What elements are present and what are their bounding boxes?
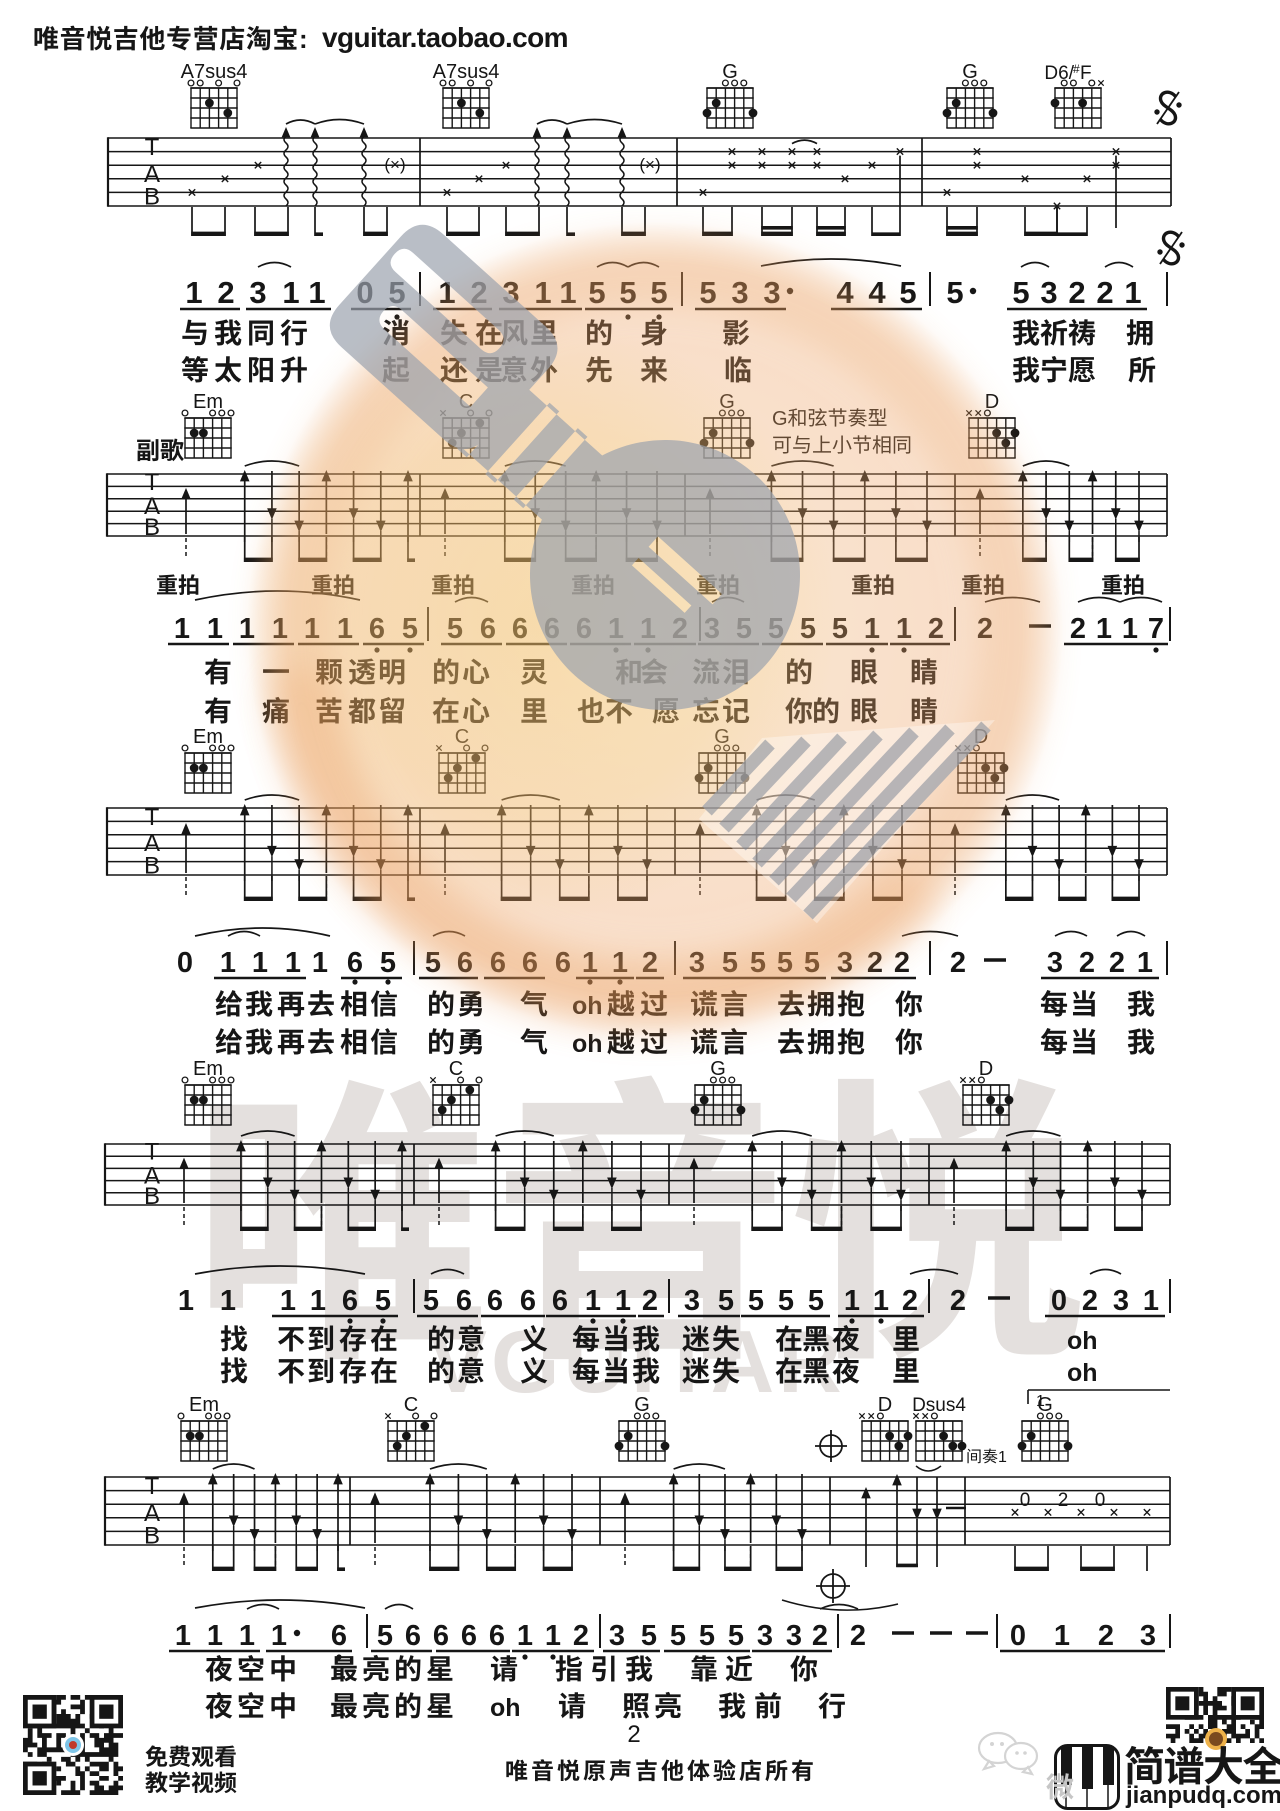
svg-text:前: 前 — [754, 1685, 782, 1725]
svg-text:1: 1 — [175, 1620, 191, 1652]
svg-text:再: 再 — [277, 1021, 305, 1061]
svg-text:1: 1 — [1143, 1285, 1159, 1317]
svg-text:去: 去 — [777, 1021, 805, 1061]
svg-text:当: 当 — [602, 1350, 630, 1390]
svg-text:0: 0 — [1020, 1490, 1031, 1511]
svg-text:我: 我 — [245, 1021, 273, 1061]
svg-text:你: 你 — [790, 1648, 818, 1688]
svg-text:每: 每 — [1040, 983, 1068, 1023]
svg-text:2: 2 — [950, 1285, 966, 1317]
svg-text:1: 1 — [310, 1285, 326, 1317]
svg-text:每: 每 — [1040, 1021, 1068, 1061]
svg-text:6: 6 — [342, 1285, 358, 1317]
svg-text:5: 5 — [778, 1285, 794, 1317]
svg-text:重拍: 重拍 — [1101, 568, 1145, 600]
svg-text:唯音悦吉他专营店淘宝:: 唯音悦吉他专营店淘宝: — [33, 19, 308, 56]
svg-text:亮: 亮 — [362, 1685, 390, 1725]
svg-text:夜: 夜 — [832, 1350, 860, 1390]
svg-text:0: 0 — [1010, 1620, 1026, 1652]
svg-text:5: 5 — [946, 275, 963, 310]
svg-text:(×): (×) — [384, 155, 405, 174]
svg-text:2: 2 — [627, 1721, 640, 1748]
svg-text:空: 空 — [237, 1648, 265, 1688]
svg-text:我: 我 — [1012, 349, 1040, 389]
svg-text:1: 1 — [174, 613, 190, 645]
svg-text:在: 在 — [370, 1350, 398, 1390]
svg-text:给: 给 — [215, 983, 243, 1023]
svg-text:3: 3 — [1047, 947, 1063, 979]
svg-text:B: B — [144, 1523, 160, 1550]
svg-text:6: 6 — [461, 1620, 477, 1652]
svg-text:5: 5 — [423, 1285, 439, 1317]
svg-text:3: 3 — [1113, 1285, 1129, 1317]
svg-text:副歌: 副歌 — [136, 431, 184, 466]
svg-text:不: 不 — [277, 1350, 305, 1390]
svg-text:1: 1 — [1036, 1393, 1045, 1410]
svg-text:5: 5 — [718, 1285, 734, 1317]
svg-text:2: 2 — [1096, 275, 1113, 310]
svg-text:最: 最 — [330, 1648, 358, 1688]
svg-text:当: 当 — [1070, 1021, 1098, 1061]
svg-text:给: 给 — [215, 1021, 243, 1061]
svg-text:你: 你 — [895, 1021, 923, 1061]
svg-text:星: 星 — [426, 1685, 454, 1725]
svg-text:引: 引 — [590, 1648, 618, 1688]
svg-text:我: 我 — [214, 312, 242, 352]
svg-text:0: 0 — [1095, 1490, 1106, 1511]
svg-text:1: 1 — [308, 275, 325, 310]
svg-text:5: 5 — [380, 947, 396, 979]
svg-text:1: 1 — [220, 1285, 236, 1317]
svg-text:你: 你 — [895, 983, 923, 1023]
svg-text:我: 我 — [1127, 983, 1155, 1023]
svg-text:jianpudq.com: jianpudq.com — [1125, 1782, 1280, 1809]
svg-text:信: 信 — [370, 983, 398, 1023]
svg-text:当: 当 — [1070, 983, 1098, 1023]
svg-text:1: 1 — [1137, 947, 1153, 979]
svg-text:2: 2 — [1070, 613, 1086, 645]
svg-text:去: 去 — [307, 1021, 335, 1061]
svg-text:我: 我 — [1012, 312, 1040, 352]
svg-text:2: 2 — [902, 1285, 918, 1317]
svg-text:2: 2 — [1068, 275, 1085, 310]
svg-text:抱: 抱 — [837, 1021, 865, 1061]
svg-text:意: 意 — [457, 1350, 485, 1390]
svg-text:oh: oh — [1067, 1327, 1098, 1355]
svg-text:的: 的 — [427, 1350, 455, 1390]
svg-text:2: 2 — [1082, 1285, 1098, 1317]
svg-text:1: 1 — [615, 1285, 631, 1317]
svg-text:教学视频: 教学视频 — [145, 1764, 237, 1798]
svg-text:2: 2 — [642, 1285, 658, 1317]
svg-text:请: 请 — [558, 1685, 586, 1725]
svg-text:Dsus4: Dsus4 — [912, 1395, 966, 1416]
svg-text:近: 近 — [725, 1648, 753, 1688]
svg-text:亮: 亮 — [654, 1685, 682, 1725]
svg-text:靠: 靠 — [690, 1648, 718, 1688]
svg-text:中: 中 — [269, 1648, 297, 1688]
svg-text:oh: oh — [572, 1030, 603, 1058]
svg-text:存: 存 — [339, 1350, 367, 1390]
svg-text:唯音悦原声吉他体验店所有: 唯音悦原声吉他体验店所有 — [505, 1752, 817, 1786]
svg-text:我: 我 — [718, 1685, 746, 1725]
svg-text:5: 5 — [1012, 275, 1029, 310]
svg-text:1: 1 — [873, 1285, 889, 1317]
svg-text:2: 2 — [1058, 1490, 1069, 1511]
svg-text:祷: 祷 — [1068, 312, 1096, 352]
svg-text:#: # — [1073, 62, 1080, 76]
svg-text:在: 在 — [775, 1350, 803, 1390]
svg-text:1: 1 — [1122, 613, 1138, 645]
svg-text:我: 我 — [1127, 1021, 1155, 1061]
svg-text:Em: Em — [193, 1058, 223, 1080]
svg-text:的: 的 — [394, 1648, 422, 1688]
svg-text:气: 气 — [520, 1021, 548, 1061]
svg-text:7: 7 — [1148, 613, 1164, 645]
svg-text:1: 1 — [1054, 1620, 1070, 1652]
svg-text:B: B — [144, 1183, 160, 1210]
svg-text:1: 1 — [1096, 613, 1112, 645]
svg-text:1: 1 — [220, 947, 236, 979]
svg-text:1: 1 — [844, 1285, 860, 1317]
svg-text:(×): (×) — [639, 155, 660, 174]
svg-text:T: T — [145, 804, 160, 831]
svg-text:3: 3 — [1140, 1620, 1156, 1652]
svg-text:B: B — [144, 853, 160, 880]
svg-text:行: 行 — [280, 312, 308, 352]
svg-text:1: 1 — [282, 275, 299, 310]
svg-text:每: 每 — [572, 1350, 600, 1390]
svg-text:愿: 愿 — [1068, 349, 1096, 389]
svg-text:1: 1 — [185, 275, 202, 310]
svg-text:1: 1 — [178, 1285, 194, 1317]
svg-text:到: 到 — [307, 1350, 335, 1390]
svg-text:有: 有 — [204, 690, 232, 730]
svg-text:3: 3 — [757, 1620, 773, 1652]
svg-text:Em: Em — [189, 1394, 219, 1416]
svg-text:5: 5 — [899, 275, 916, 310]
svg-text:3: 3 — [249, 275, 266, 310]
svg-text:2: 2 — [1109, 947, 1125, 979]
svg-text:5: 5 — [670, 1620, 686, 1652]
svg-text:1: 1 — [285, 947, 301, 979]
svg-text:T: T — [145, 1473, 160, 1500]
svg-text:oh: oh — [1067, 1359, 1098, 1387]
svg-text:2: 2 — [950, 947, 966, 979]
svg-text:重拍: 重拍 — [156, 568, 200, 600]
svg-text:祈: 祈 — [1040, 312, 1068, 352]
svg-text:相: 相 — [340, 983, 368, 1023]
svg-text:等: 等 — [181, 349, 209, 389]
svg-text:1: 1 — [207, 613, 223, 645]
svg-text:1: 1 — [517, 1620, 533, 1652]
svg-text:最: 最 — [330, 1685, 358, 1725]
svg-text:我: 我 — [245, 983, 273, 1023]
svg-text:夜: 夜 — [205, 1648, 233, 1688]
svg-text:1: 1 — [280, 1285, 296, 1317]
svg-text:5: 5 — [748, 1285, 764, 1317]
svg-text:去: 去 — [307, 983, 335, 1023]
svg-text:有: 有 — [204, 651, 232, 691]
svg-text:2: 2 — [1079, 947, 1095, 979]
svg-text:请: 请 — [490, 1648, 518, 1688]
svg-text:B: B — [144, 514, 160, 541]
svg-text:1: 1 — [312, 947, 328, 979]
svg-text:的: 的 — [394, 1685, 422, 1725]
svg-text:5: 5 — [808, 1285, 824, 1317]
svg-text:照: 照 — [622, 1685, 650, 1725]
svg-text:0: 0 — [177, 947, 193, 979]
svg-text:3: 3 — [684, 1285, 700, 1317]
svg-text:行: 行 — [818, 1685, 846, 1725]
svg-text:迷: 迷 — [682, 1350, 710, 1390]
svg-text:中: 中 — [269, 1685, 297, 1725]
svg-text:1: 1 — [252, 947, 268, 979]
svg-text:勇: 勇 — [457, 1021, 485, 1061]
svg-text:宁: 宁 — [1040, 349, 1068, 389]
svg-text:拥: 拥 — [807, 1021, 835, 1061]
svg-text:T: T — [145, 134, 160, 161]
svg-text:6: 6 — [520, 1285, 536, 1317]
svg-text:亮: 亮 — [362, 1648, 390, 1688]
svg-text:失: 失 — [712, 1350, 740, 1390]
svg-text:的: 的 — [427, 983, 455, 1023]
svg-text:5: 5 — [375, 1285, 391, 1317]
svg-text:阳: 阳 — [247, 349, 275, 389]
svg-text:3: 3 — [1040, 275, 1057, 310]
svg-text:星: 星 — [426, 1648, 454, 1688]
svg-text:1: 1 — [585, 1285, 601, 1317]
svg-text:T: T — [145, 469, 160, 496]
svg-text:升: 升 — [280, 349, 308, 389]
svg-text:2: 2 — [1098, 1620, 1114, 1652]
svg-text:D6/: D6/ — [1044, 63, 1074, 84]
svg-text:所: 所 — [1128, 349, 1156, 389]
svg-text:夜: 夜 — [205, 1685, 233, 1725]
svg-text:6: 6 — [456, 1285, 472, 1317]
svg-text:拥: 拥 — [1126, 312, 1154, 352]
svg-text:太: 太 — [214, 349, 242, 389]
svg-text:我: 我 — [632, 1350, 660, 1390]
svg-text:与: 与 — [181, 312, 209, 352]
svg-text:指: 指 — [555, 1648, 583, 1688]
svg-text:0: 0 — [1051, 1285, 1067, 1317]
svg-text:空: 空 — [237, 1685, 265, 1725]
svg-text:间奏1: 间奏1 — [966, 1443, 1007, 1467]
svg-text:我: 我 — [625, 1648, 653, 1688]
svg-text:的: 的 — [427, 1021, 455, 1061]
svg-text:Em: Em — [193, 391, 223, 413]
svg-text:再: 再 — [277, 983, 305, 1023]
svg-text:6: 6 — [487, 1285, 503, 1317]
svg-text:同: 同 — [247, 312, 275, 352]
svg-text:vguitar.taobao.com: vguitar.taobao.com — [322, 22, 568, 53]
svg-text:6: 6 — [347, 947, 363, 979]
svg-text:黑: 黑 — [802, 1350, 830, 1390]
svg-text:微: 微 — [1046, 1766, 1074, 1806]
svg-text:2: 2 — [850, 1620, 866, 1652]
svg-text:1: 1 — [1124, 275, 1141, 310]
svg-text:6: 6 — [552, 1285, 568, 1317]
svg-text:找: 找 — [220, 1350, 248, 1390]
svg-text:2: 2 — [217, 275, 234, 310]
svg-text:义: 义 — [520, 1350, 548, 1390]
svg-text:相: 相 — [340, 1021, 368, 1061]
svg-text:B: B — [144, 184, 160, 211]
svg-text:oh: oh — [490, 1694, 521, 1722]
svg-text:信: 信 — [370, 1021, 398, 1061]
svg-text:里: 里 — [892, 1350, 920, 1390]
